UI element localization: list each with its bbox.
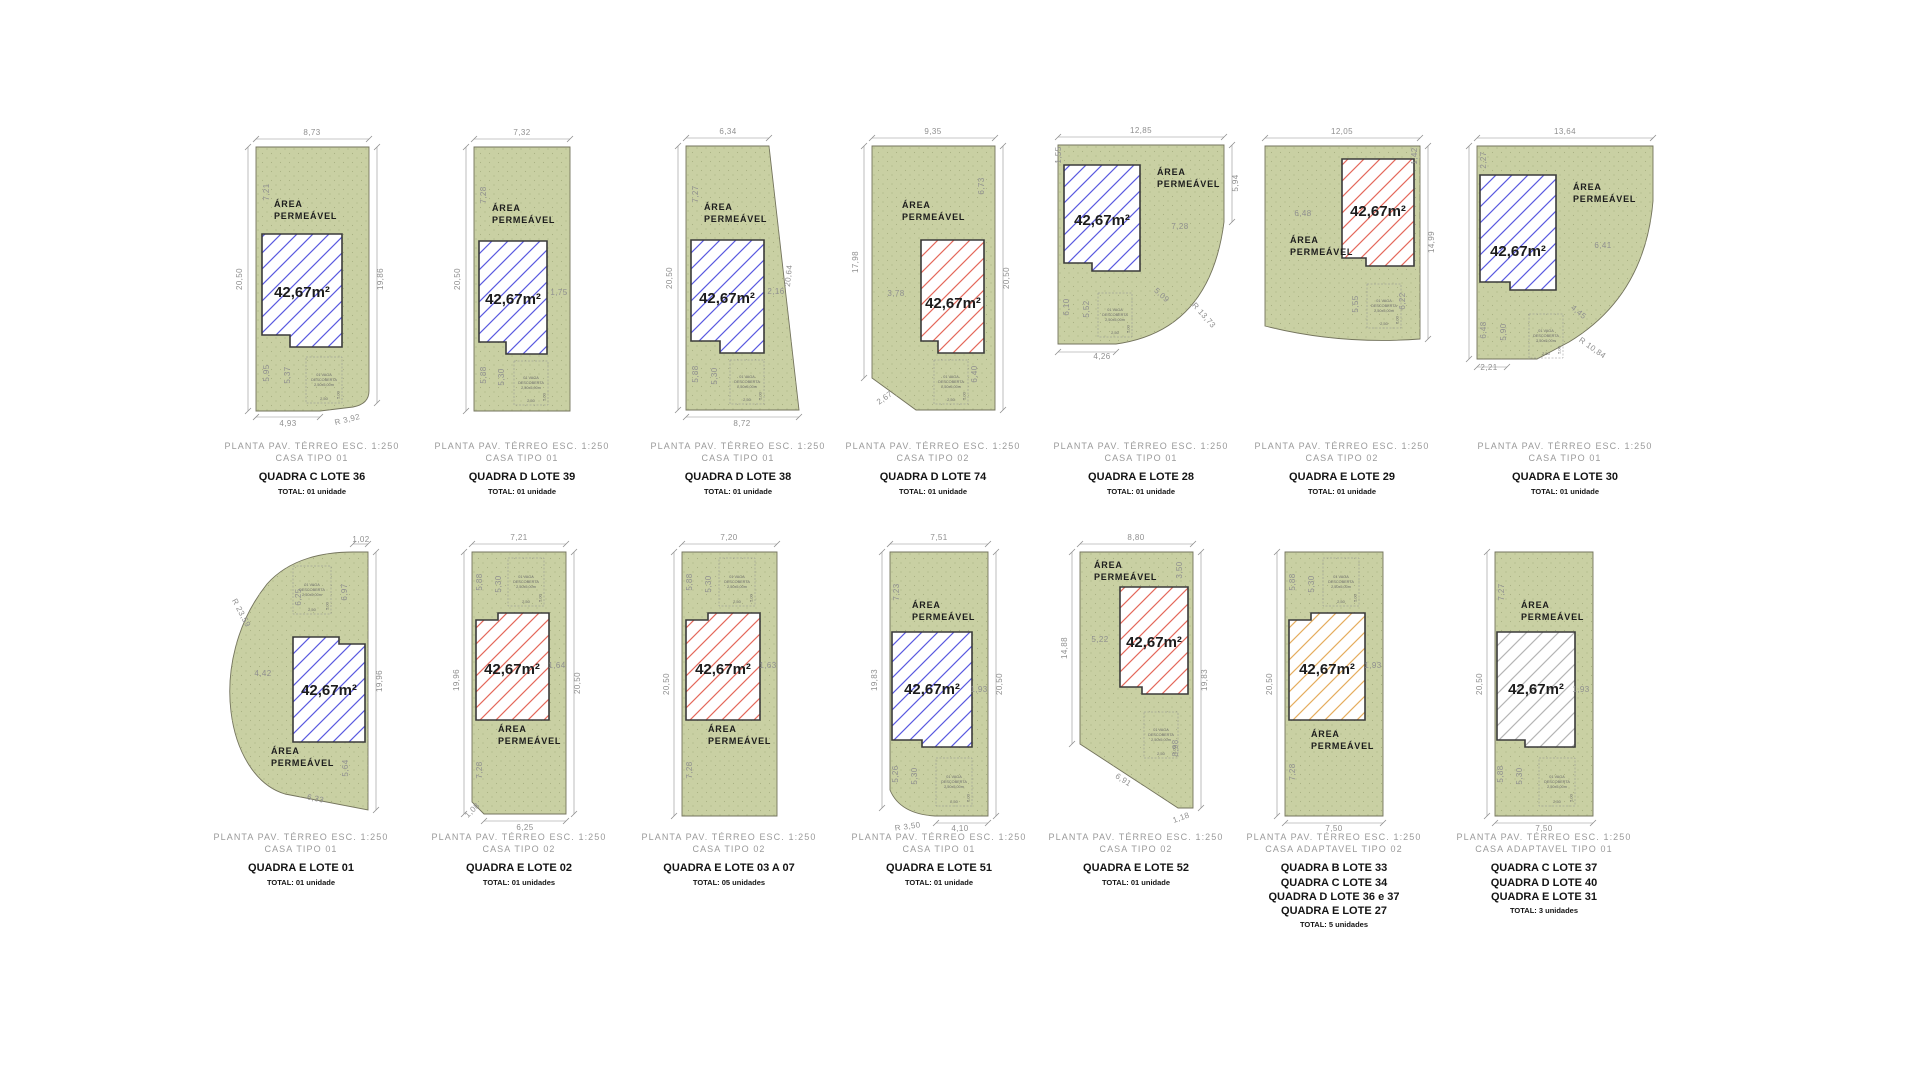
parking-stall-label: 2,50x5,00m: [1547, 785, 1567, 789]
dimension-label: 1,75: [550, 288, 567, 297]
dimension-label: 17,98: [851, 251, 860, 273]
dimension-label: 4,26: [1093, 352, 1110, 361]
permeable-area-label: PERMEÁVEL: [1521, 612, 1584, 622]
parking-stall-label: 01 VAGA: [304, 583, 320, 587]
dimension-label: 20,50: [453, 268, 462, 290]
parking-width-label: 2,50: [950, 799, 959, 804]
lot-plan-c37grp: 01 VAGADESCOBERTA2,50x5,00m2,505,0042,67…: [1475, 549, 1596, 833]
parking-stall-label: 01 VAGA: [523, 376, 539, 380]
parking-width-label: 2,50: [320, 396, 329, 401]
parking-width-label: 2,50: [733, 599, 742, 604]
dimension-label: 7,32: [513, 128, 530, 137]
dimension-label: 5,88: [479, 366, 488, 383]
parking-stall-label: 2,50x5,00m: [1536, 339, 1556, 343]
parking-width-label: 2,50: [947, 397, 956, 402]
dimension-label: 6,34: [719, 127, 736, 136]
caption-lot-name: QUADRA E LOTE 03 A 07: [642, 861, 817, 875]
parking-stall-label: DESCOBERTA: [1328, 580, 1354, 584]
lot-plan-e03a07: 01 VAGADESCOBERTA2,50x5,00m2,505,0042,67…: [662, 533, 780, 819]
permeable-area-label: PERMEÁVEL: [271, 758, 334, 768]
parking-height-label: 5,00: [1126, 324, 1131, 333]
house-area-label: 42,67m²: [1074, 212, 1130, 229]
caption-total-units: TOTAL: 5 unidades: [1247, 920, 1422, 929]
dimension-label: 8,72: [733, 419, 750, 428]
house-area-label: 42,67m²: [904, 681, 960, 698]
dimension-label: 5,30: [1307, 575, 1316, 592]
dimension-label: 9,35: [924, 127, 941, 136]
dimension-label: 7,28: [475, 761, 484, 778]
permeable-area-label: PERMEÁVEL: [1311, 741, 1374, 751]
permeable-area-label: PERMEÁVEL: [1094, 572, 1157, 582]
caption-house-type: CASA ADAPTAVEL TIPO 02: [1247, 843, 1422, 855]
lot-caption-e03a07: PLANTA PAV. TÉRREO ESC. 1:250CASA TIPO 0…: [642, 831, 817, 887]
caption-house-type: CASA TIPO 01: [225, 452, 400, 464]
dimension-label: 1,93: [1572, 685, 1589, 694]
caption-lot-list: QUADRA E LOTE 29: [1255, 470, 1430, 484]
permeable-area-label: ÁREA: [708, 724, 737, 734]
lot-plan-d39: 01 VAGADESCOBERTA2,50x5,00m2,505,0042,67…: [453, 128, 573, 414]
caption-lot-name: QUADRA D LOTE 38: [651, 470, 826, 484]
permeable-area-label: PERMEÁVEL: [1290, 247, 1353, 257]
permeable-area-label: ÁREA: [271, 746, 300, 756]
caption-lot-list: QUADRA D LOTE 39: [435, 470, 610, 484]
dimension-label: 5,88: [691, 365, 700, 382]
dimension-label: 20,50: [1265, 673, 1274, 695]
dimension-label: 13,64: [1554, 127, 1576, 136]
caption-lot-name: QUADRA E LOTE 30: [1478, 470, 1653, 484]
parking-stall-label: 01 VAGA: [316, 373, 332, 377]
caption-scale-line: PLANTA PAV. TÉRREO ESC. 1:250: [214, 831, 389, 843]
parking-stall-label: DESCOBERTA: [311, 378, 337, 382]
lot-caption-c37grp: PLANTA PAV. TÉRREO ESC. 1:250CASA ADAPTA…: [1457, 831, 1632, 915]
dimension-label: 2,16: [767, 287, 784, 296]
permeable-area-label: ÁREA: [1290, 235, 1319, 245]
caption-house-type: CASA TIPO 01: [214, 843, 389, 855]
dimension-label: 20,50: [995, 673, 1004, 695]
caption-scale-line: PLANTA PAV. TÉRREO ESC. 1:250: [435, 440, 610, 452]
parking-stall-label: 2,50x5,00m: [1374, 309, 1394, 313]
caption-lot-list: QUADRA E LOTE 01: [214, 861, 389, 875]
dimension-label: 19,96: [452, 669, 461, 691]
lot-plan-d74: 01 VAGADESCOBERTA2,50x5,00m2,505,0042,67…: [851, 127, 1011, 413]
parking-height-label: 5,00: [966, 793, 971, 802]
parking-stall-label: 2,50x5,00m: [516, 585, 536, 589]
dimension-label: 6,41: [1594, 241, 1611, 250]
caption-house-type: CASA TIPO 01: [1478, 452, 1653, 464]
parking-width-label: 2,50: [522, 599, 531, 604]
lot-plan-c36: 01 VAGADESCOBERTA2,50x5,00m2,505,0042,67…: [235, 128, 385, 428]
parking-stall-label: 2,50x5,00m: [1105, 318, 1125, 322]
permeable-area-label: ÁREA: [498, 724, 527, 734]
dimension-label: 3,78: [887, 289, 904, 298]
dimension-label: 1,02: [352, 535, 369, 544]
caption-lot-name: QUADRA D LOTE 39: [435, 470, 610, 484]
parking-width-label: 2,50: [1337, 599, 1346, 604]
site-plan-drawing: 01 VAGADESCOBERTA2,50x5,00m2,505,0042,67…: [0, 0, 1920, 1080]
dimension-label: 7,28: [1171, 222, 1188, 231]
parking-height-label: 5,00: [749, 593, 754, 602]
parking-stall-label: 01 VAGA: [518, 575, 534, 579]
dimension-label: 1,18: [1172, 810, 1191, 824]
caption-lot-name: QUADRA E LOTE 51: [852, 861, 1027, 875]
lot-caption-d74: PLANTA PAV. TÉRREO ESC. 1:250CASA TIPO 0…: [846, 440, 1021, 496]
parking-stall-label: 2,50x5,00m: [521, 386, 541, 390]
parking-stall-label: 01 VAGA: [1376, 299, 1392, 303]
caption-lot-name: QUADRA C LOTE 36: [225, 470, 400, 484]
permeable-area-label: ÁREA: [1311, 729, 1340, 739]
caption-lot-name: QUADRA C LOTE 37: [1457, 861, 1632, 875]
caption-lot-name: QUADRA C LOTE 34: [1247, 876, 1422, 890]
lot-plan-d38: 01 VAGADESCOBERTA2,50x5,00m2,505,0042,67…: [665, 127, 802, 428]
lot-caption-e02: PLANTA PAV. TÉRREO ESC. 1:250CASA TIPO 0…: [432, 831, 607, 887]
lot-caption-d38: PLANTA PAV. TÉRREO ESC. 1:250CASA TIPO 0…: [651, 440, 826, 496]
dimension-label: 19,83: [1200, 669, 1209, 691]
caption-total-units: TOTAL: 01 unidade: [225, 487, 400, 496]
parking-stall-label: 01 VAGA: [946, 775, 962, 779]
dimension-label: 8,80: [1127, 533, 1144, 542]
dimension-label: 5,30: [910, 767, 919, 784]
caption-lot-name: QUADRA E LOTE 29: [1255, 470, 1430, 484]
dimension-label: 5,88: [1496, 765, 1505, 782]
parking-stall-label: 2,50x5,00m: [1331, 585, 1351, 589]
caption-house-type: CASA ADAPTAVEL TIPO 01: [1457, 843, 1632, 855]
house-area-label: 42,67m²: [699, 290, 755, 307]
permeable-area-label: PERMEÁVEL: [492, 215, 555, 225]
dimension-label: 7,21: [262, 183, 271, 200]
caption-scale-line: PLANTA PAV. TÉRREO ESC. 1:250: [225, 440, 400, 452]
caption-lot-list: QUADRA D LOTE 38: [651, 470, 826, 484]
caption-total-units: TOTAL: 01 unidade: [846, 487, 1021, 496]
dimension-label: 5,88: [685, 573, 694, 590]
permeable-area-label: PERMEÁVEL: [498, 736, 561, 746]
parking-height-label: 5,00: [1353, 593, 1358, 602]
dimension-label: 20,50: [573, 672, 582, 694]
dimension-label: 5,94: [1231, 174, 1240, 191]
caption-scale-line: PLANTA PAV. TÉRREO ESC. 1:250: [651, 440, 826, 452]
caption-house-type: CASA TIPO 02: [1049, 843, 1224, 855]
caption-total-units: TOTAL: 01 unidade: [435, 487, 610, 496]
dimension-label: 8,73: [303, 128, 320, 137]
house-area-label: 42,67m²: [1126, 634, 1182, 651]
dimension-label: 7,51: [930, 533, 947, 542]
caption-lot-name: QUADRA B LOTE 33: [1247, 861, 1422, 875]
lot-caption-e01: PLANTA PAV. TÉRREO ESC. 1:250CASA TIPO 0…: [214, 831, 389, 887]
parking-width-label: 2,50: [743, 397, 752, 402]
dimension-label: 5,30: [710, 367, 719, 384]
caption-scale-line: PLANTA PAV. TÉRREO ESC. 1:250: [1247, 831, 1422, 843]
dimension-label: 6,40: [970, 365, 979, 382]
dimension-label: R 10,84: [1577, 335, 1608, 360]
dimension-label: 8,98: [1171, 739, 1180, 756]
dimension-label: 6,10: [1062, 298, 1071, 315]
parking-stall-label: 2,50x5,00m: [944, 785, 964, 789]
dimension-label: 7,28: [479, 186, 488, 203]
permeable-area-label: ÁREA: [1573, 182, 1602, 192]
dimension-label: 5,88: [475, 573, 484, 590]
caption-lot-name: QUADRA D LOTE 40: [1457, 876, 1632, 890]
caption-total-units: TOTAL: 05 unidades: [642, 878, 817, 887]
parking-stall-label: 01 VAGA: [943, 375, 959, 379]
permeable-area-label: ÁREA: [902, 200, 931, 210]
lot-caption-e51: PLANTA PAV. TÉRREO ESC. 1:250CASA TIPO 0…: [852, 831, 1027, 887]
caption-lot-name: QUADRA E LOTE 31: [1457, 890, 1632, 904]
parking-width-label: 2,50: [1553, 799, 1562, 804]
dimension-label: 1,55: [1054, 146, 1063, 163]
parking-width-label: 2,50: [1157, 751, 1166, 756]
dimension-label: 4,42: [254, 669, 271, 678]
caption-lot-list: QUADRA E LOTE 30: [1478, 470, 1653, 484]
dimension-label: 5,64: [341, 759, 350, 776]
parking-stall-label: DESCOBERTA: [1533, 334, 1559, 338]
caption-lot-list: QUADRA D LOTE 74: [846, 470, 1021, 484]
caption-lot-name: QUADRA E LOTE 27: [1247, 904, 1422, 918]
dimension-label: 5,90: [1499, 323, 1508, 340]
permeable-area-label: ÁREA: [274, 199, 303, 209]
caption-scale-line: PLANTA PAV. TÉRREO ESC. 1:250: [1049, 831, 1224, 843]
caption-lot-name: QUADRA D LOTE 36 e 37: [1247, 890, 1422, 904]
dimension-label: 7,27: [691, 185, 700, 202]
dimension-label: 5,30: [704, 575, 713, 592]
caption-house-type: CASA TIPO 01: [1054, 452, 1229, 464]
dimension-label: 20,50: [662, 673, 671, 695]
caption-lot-name: QUADRA E LOTE 52: [1049, 861, 1224, 875]
lot-caption-b33grp: PLANTA PAV. TÉRREO ESC. 1:250CASA ADAPTA…: [1247, 831, 1422, 929]
caption-scale-line: PLANTA PAV. TÉRREO ESC. 1:250: [642, 831, 817, 843]
parking-stall-label: 01 VAGA: [1549, 775, 1565, 779]
parking-stall-label: 2,50x5,00m: [314, 383, 334, 387]
permeable-area-label: ÁREA: [1521, 600, 1550, 610]
dimension-label: 20,50: [665, 267, 674, 289]
caption-lot-name: QUADRA D LOTE 74: [846, 470, 1021, 484]
dimension-label: 12,05: [1331, 127, 1353, 136]
parking-stall-label: 2,50x5,00m: [737, 385, 757, 389]
caption-total-units: TOTAL: 01 unidade: [1054, 487, 1229, 496]
permeable-area-label: ÁREA: [1094, 560, 1123, 570]
parking-height-label: 5,00: [336, 390, 341, 399]
lot-caption-e30: PLANTA PAV. TÉRREO ESC. 1:250CASA TIPO 0…: [1478, 440, 1653, 496]
permeable-area-label: PERMEÁVEL: [274, 211, 337, 221]
lot-plan-e29: 01 VAGADESCOBERTA2,50x5,00m2,505,0042,67…: [1262, 127, 1436, 342]
lot-plan-e28: 01 VAGADESCOBERTA2,50x5,00m2,505,0042,67…: [1054, 126, 1240, 361]
dimension-label: 5,52: [1082, 300, 1091, 317]
caption-total-units: TOTAL: 01 unidades: [432, 878, 607, 887]
parking-width-label: 2,50: [308, 607, 317, 612]
parking-stall-label: 01 VAGA: [1538, 329, 1554, 333]
dimension-label: 6,48: [1294, 209, 1311, 218]
dimension-label: 20,50: [1002, 267, 1011, 289]
caption-scale-line: PLANTA PAV. TÉRREO ESC. 1:250: [432, 831, 607, 843]
house-area-label: 42,67m²: [301, 682, 357, 699]
permeable-area-label: PERMEÁVEL: [902, 212, 965, 222]
parking-height-label: 5,00: [1557, 345, 1562, 354]
caption-house-type: CASA TIPO 02: [846, 452, 1021, 464]
parking-width-label: 2,50: [527, 398, 536, 403]
dimension-label: 5,30: [1515, 767, 1524, 784]
parking-stall-label: DESCOBERTA: [518, 381, 544, 385]
dimension-label: 7,21: [510, 533, 527, 542]
lot-plan-b33grp: 01 VAGADESCOBERTA2,50x5,00m2,505,0042,67…: [1265, 549, 1386, 833]
caption-scale-line: PLANTA PAV. TÉRREO ESC. 1:250: [852, 831, 1027, 843]
dimension-label: 5,95: [262, 364, 271, 381]
dimension-label: 5,26: [891, 765, 900, 782]
caption-house-type: CASA TIPO 01: [435, 452, 610, 464]
dimension-label: 6,73: [977, 177, 986, 194]
parking-stall-label: DESCOBERTA: [938, 380, 964, 384]
house-area-label: 42,67m²: [274, 284, 330, 301]
permeable-area-label: PERMEÁVEL: [912, 612, 975, 622]
lot-caption-d39: PLANTA PAV. TÉRREO ESC. 1:250CASA TIPO 0…: [435, 440, 610, 496]
parking-stall-label: 01 VAGA: [1333, 575, 1349, 579]
caption-total-units: TOTAL: 01 unidade: [651, 487, 826, 496]
dimension-label: 2,21: [1480, 363, 1497, 372]
dimension-label: 7,28: [685, 761, 694, 778]
house-area-label: 42,67m²: [695, 661, 751, 678]
parking-width-label: 2,50: [1111, 330, 1120, 335]
site-plan-sheet: 01 VAGADESCOBERTA2,50x5,00m2,505,0042,67…: [0, 0, 1920, 1080]
caption-house-type: CASA TIPO 02: [1255, 452, 1430, 464]
lot-plan-e52: 01 VAGADESCOBERTA2,50x5,00m2,505,0042,67…: [1060, 533, 1209, 825]
dimension-label: 6,25: [294, 588, 303, 605]
lot-caption-e28: PLANTA PAV. TÉRREO ESC. 1:250CASA TIPO 0…: [1054, 440, 1229, 496]
lot-plan-e01: 01 VAGADESCOBERTA2,50x5,00m2,505,0042,67…: [230, 535, 384, 813]
parking-stall-label: 2,50x5,00m: [941, 385, 961, 389]
dimension-label: 5,88: [1288, 573, 1297, 590]
house-area-label: 42,67m²: [484, 661, 540, 678]
lot-plan-e51: 01 VAGADESCOBERTA2,50x5,00m2,505,0042,67…: [870, 533, 1004, 833]
dimension-label: 7,23: [892, 583, 901, 600]
caption-scale-line: PLANTA PAV. TÉRREO ESC. 1:250: [846, 440, 1021, 452]
caption-lot-list: QUADRA C LOTE 36: [225, 470, 400, 484]
caption-total-units: TOTAL: 01 unidade: [1049, 878, 1224, 887]
parking-height-label: 5,00: [1569, 793, 1574, 802]
dimension-label: 5,55: [1351, 295, 1360, 312]
dimension-label: R 3,92: [334, 412, 362, 427]
lot-plan-e02: 01 VAGADESCOBERTA2,50x5,00m2,505,0042,67…: [452, 533, 582, 832]
caption-lot-name: QUADRA E LOTE 28: [1054, 470, 1229, 484]
dimension-label: 5,30: [494, 575, 503, 592]
permeable-area-label: ÁREA: [1157, 167, 1186, 177]
dimension-label: 1,42: [1410, 147, 1419, 164]
parking-stall-label: DESCOBERTA: [1544, 780, 1570, 784]
parking-width-label: 2,50: [1380, 321, 1389, 326]
dimension-label: 3,50: [1175, 561, 1184, 578]
parking-stall-label: DESCOBERTA: [513, 580, 539, 584]
caption-scale-line: PLANTA PAV. TÉRREO ESC. 1:250: [1255, 440, 1430, 452]
house-area-label: 42,67m²: [1350, 203, 1406, 220]
house-area-label: 42,67m²: [1299, 661, 1355, 678]
caption-scale-line: PLANTA PAV. TÉRREO ESC. 1:250: [1478, 440, 1653, 452]
caption-lot-list: QUADRA E LOTE 51: [852, 861, 1027, 875]
caption-lot-name: QUADRA E LOTE 01: [214, 861, 389, 875]
permeable-area-label: PERMEÁVEL: [704, 214, 767, 224]
dimension-label: 5,30: [497, 368, 506, 385]
parking-height-label: 5,00: [538, 593, 543, 602]
permeable-area-label: ÁREA: [492, 203, 521, 213]
parking-stall-label: 01 VAGA: [1153, 728, 1169, 732]
lot-caption-c36: PLANTA PAV. TÉRREO ESC. 1:250CASA TIPO 0…: [225, 440, 400, 496]
parking-stall-label: DESCOBERTA: [941, 780, 967, 784]
dimension-label: 20,50: [1475, 673, 1484, 695]
parking-stall-label: DESCOBERTA: [1148, 733, 1174, 737]
caption-lot-list: QUADRA E LOTE 52: [1049, 861, 1224, 875]
permeable-area-label: ÁREA: [704, 202, 733, 212]
house-area-label: 42,67m²: [1490, 243, 1546, 260]
parking-height-label: 5,00: [1395, 315, 1400, 324]
parking-height-label: 5,00: [542, 392, 547, 401]
parking-stall-label: 2,50x5,00m: [727, 585, 747, 589]
caption-scale-line: PLANTA PAV. TÉRREO ESC. 1:250: [1054, 440, 1229, 452]
parking-stall-label: DESCOBERTA: [299, 588, 325, 592]
permeable-area-label: ÁREA: [912, 600, 941, 610]
caption-total-units: TOTAL: 01 unidade: [214, 878, 389, 887]
dimension-label: 20,64: [783, 264, 794, 287]
dimension-label: 7,20: [720, 533, 737, 542]
permeable-area-label: PERMEÁVEL: [708, 736, 771, 746]
parking-height-label: 5,00: [758, 391, 763, 400]
parking-stall-label: 2,50x5,00m: [302, 593, 322, 597]
dimension-label: 5,22: [1091, 635, 1108, 644]
dimension-label: 1,93: [970, 685, 987, 694]
dimension-label: 1,93: [1364, 661, 1381, 670]
dimension-label: 6,22: [1398, 292, 1407, 309]
parking-stall-label: DESCOBERTA: [1102, 313, 1128, 317]
caption-lot-list: QUADRA E LOTE 28: [1054, 470, 1229, 484]
dimension-label: 19,83: [870, 669, 879, 691]
caption-house-type: CASA TIPO 01: [651, 452, 826, 464]
dimension-label: 7,27: [1497, 583, 1506, 600]
parking-stall-label: 01 VAGA: [739, 375, 755, 379]
dimension-label: 14,99: [1427, 231, 1436, 253]
caption-lot-list: QUADRA C LOTE 37QUADRA D LOTE 40QUADRA E…: [1457, 861, 1632, 904]
parking-stall-label: 01 VAGA: [1107, 308, 1123, 312]
caption-total-units: TOTAL: 3 unidades: [1457, 906, 1632, 915]
permeable-area-label: PERMEÁVEL: [1157, 179, 1220, 189]
parking-stall-label: DESCOBERTA: [734, 380, 760, 384]
house-hatch: [1480, 175, 1556, 290]
caption-house-type: CASA TIPO 01: [852, 843, 1027, 855]
parking-stall-label: DESCOBERTA: [1371, 304, 1397, 308]
dimension-label: 1,64: [548, 661, 565, 670]
dimension-label: 14,88: [1060, 637, 1069, 659]
dimension-label: 5,37: [283, 366, 292, 383]
dimension-label: R 13,73: [1190, 301, 1217, 330]
dimension-label: 12,85: [1130, 126, 1152, 135]
parking-width-label: 2,50: [1542, 351, 1551, 356]
dimension-label: 4,93: [279, 419, 296, 428]
lot-plan-e30: 01 VAGADESCOBERTA2,50x5,00m2,505,0042,67…: [1466, 127, 1656, 372]
lot-caption-e29: PLANTA PAV. TÉRREO ESC. 1:250CASA TIPO 0…: [1255, 440, 1430, 496]
caption-total-units: TOTAL: 01 unidade: [852, 878, 1027, 887]
dimension-label: 19,86: [376, 268, 385, 290]
house-area-label: 42,67m²: [925, 295, 981, 312]
parking-height-label: 5,00: [962, 391, 967, 400]
house-area-label: 42,67m²: [1508, 681, 1564, 698]
caption-lot-name: QUADRA E LOTE 02: [432, 861, 607, 875]
caption-total-units: TOTAL: 01 unidade: [1255, 487, 1430, 496]
parking-stall-label: 01 VAGA: [729, 575, 745, 579]
permeable-area-label: PERMEÁVEL: [1573, 194, 1636, 204]
dimension-label: 20,50: [235, 268, 244, 290]
dimension-label: 6,48: [1479, 321, 1488, 338]
caption-house-type: CASA TIPO 02: [432, 843, 607, 855]
dimension-label: 19,96: [375, 670, 384, 692]
lot-caption-e52: PLANTA PAV. TÉRREO ESC. 1:250CASA TIPO 0…: [1049, 831, 1224, 887]
caption-lot-list: QUADRA E LOTE 02: [432, 861, 607, 875]
house-area-label: 42,67m²: [485, 291, 541, 308]
dimension-label: 2,27: [1479, 151, 1488, 168]
parking-stall-label: 2,50x5,00m: [1151, 738, 1171, 742]
dimension-label: 1,63: [759, 661, 776, 670]
